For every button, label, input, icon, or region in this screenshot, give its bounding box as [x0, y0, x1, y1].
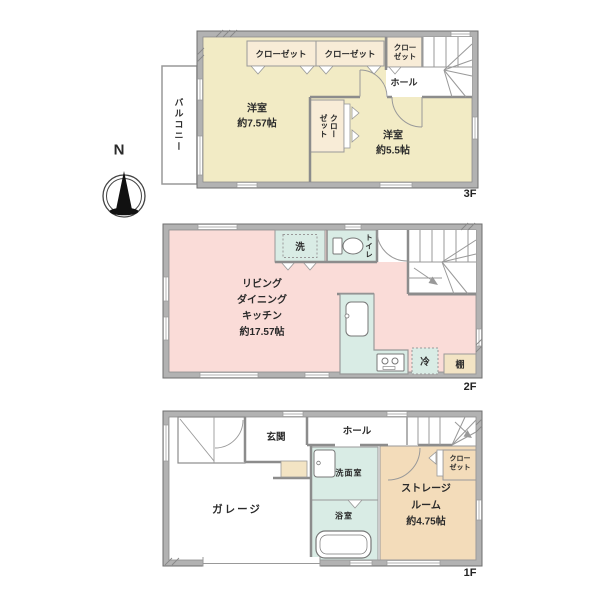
label-entrance: 玄関 [266, 429, 285, 443]
label-refrigerator: 冷 [420, 354, 430, 368]
label-ldk: リビング ダイニング キッチン 約17.57帖 [237, 277, 287, 341]
label-hall-1f: ホール [343, 423, 372, 437]
compass-icon [103, 171, 145, 217]
label-washroom: 洗面室 [336, 468, 363, 479]
floor-2f-plan [163, 223, 482, 378]
compass-north-label: N [114, 142, 125, 159]
label-closet-1f: クロー ゼット [450, 455, 471, 473]
floor-tag-2f: 2F [464, 381, 477, 393]
floorplan-page: N バルコニー クローゼット クローゼット クロー ゼット ホール 洋室 約7.… [0, 0, 600, 600]
label-toilet: トイレ [364, 233, 375, 259]
bathtub-icon [316, 531, 371, 558]
vanity-icon [314, 450, 335, 477]
garage-opening [203, 557, 320, 567]
label-closet-3f-3: クロー ゼット [394, 43, 417, 61]
label-room-b-3f: 洋室 約5.5帖 [376, 130, 410, 159]
entry-nook [178, 417, 245, 463]
label-laundry: 洗 [295, 239, 305, 253]
label-closet-3f-1: クローゼット [255, 48, 306, 60]
label-shelf: 棚 [455, 358, 464, 371]
floor-tag-3f: 3F [464, 188, 477, 200]
label-closet-3f-mid: クロー ゼット [318, 114, 339, 138]
entry-step [281, 461, 307, 477]
label-bathroom: 浴室 [335, 511, 353, 522]
label-balcony: バルコニー [173, 98, 186, 153]
label-garage: ガレージ [212, 502, 262, 517]
label-hall-3f: ホール [390, 76, 417, 89]
toilet-icon [333, 238, 363, 254]
label-closet-3f-2: クローゼット [324, 48, 375, 60]
sink-icon [345, 302, 368, 336]
floorplan-drawing [0, 0, 600, 600]
stove-icon [377, 354, 404, 371]
label-room-a-3f: 洋室 約7.57帖 [237, 103, 276, 132]
floor-3f-plan [162, 30, 478, 188]
label-storage-room: ストレージ ルーム 約4.75帖 [401, 481, 451, 531]
floor-tag-1f: 1F [464, 567, 477, 579]
